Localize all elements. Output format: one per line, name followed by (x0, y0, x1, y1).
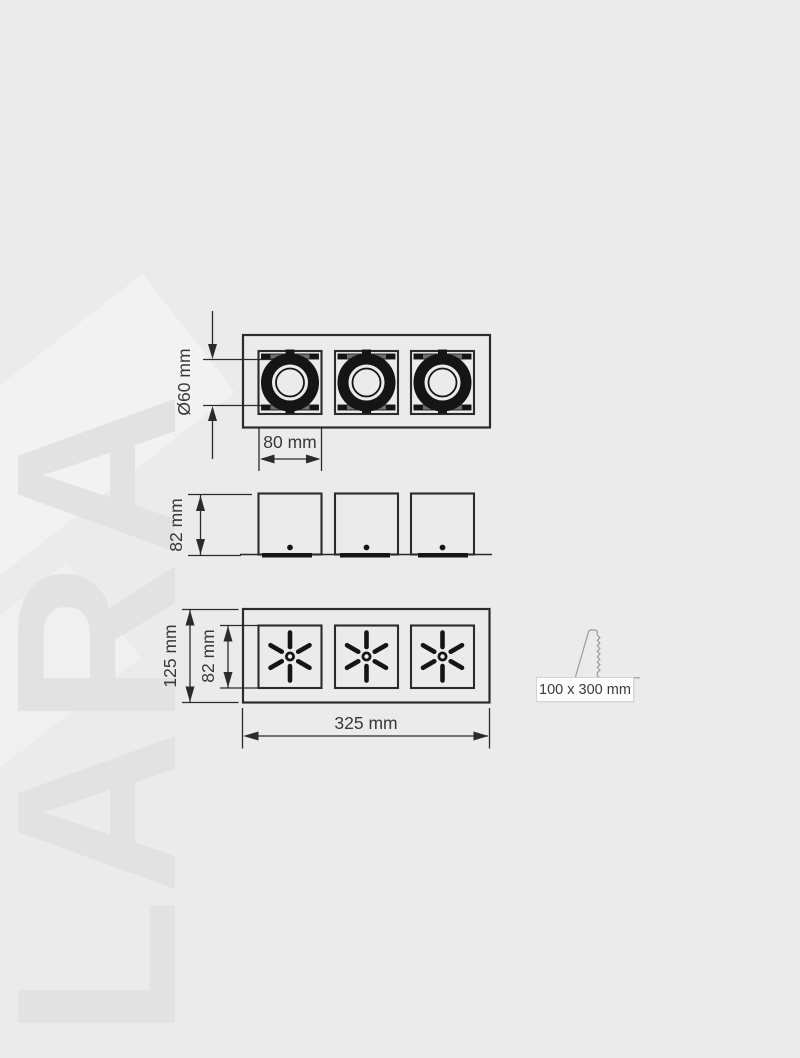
arrowhead-down-icon (186, 687, 195, 703)
arrowhead-down-icon (208, 344, 217, 359)
side-view-drawing (188, 494, 492, 558)
dim-label-recess-height: 82 mm (165, 475, 187, 575)
fixing-dot-icon (287, 545, 293, 551)
dim-label-diameter: Ø60 mm (173, 332, 195, 432)
arrowhead-down-icon (196, 539, 205, 555)
lamp-beam-icon (423, 633, 462, 681)
arrowhead-up-icon (186, 610, 195, 626)
technical-drawing (0, 0, 800, 1058)
saw-cutout-icon (575, 630, 640, 679)
arrowhead-up-icon (224, 626, 233, 642)
fixing-dot-icon (440, 545, 446, 551)
spotlight-module-side (259, 494, 322, 558)
arrowhead-right-icon (474, 732, 489, 741)
spotlight-ring-icon (343, 359, 390, 406)
spotlight-module-front (335, 626, 398, 689)
recess-height-dimension (188, 495, 252, 556)
cutout-size-badge: 100 x 300 mm (536, 677, 634, 702)
lamp-beam-icon (347, 633, 386, 681)
fixing-dot-icon (364, 545, 370, 551)
spotlight-module-side (335, 494, 398, 558)
dim-label-inner-height: 82 mm (197, 606, 219, 706)
spotlight-module-top (335, 350, 398, 415)
spotlight-module-top (411, 350, 474, 415)
spotlight-module-side (411, 494, 474, 558)
spotlight-ring-icon (267, 359, 314, 406)
dim-label-plate-height: 125 mm (159, 606, 181, 706)
spotlight-ring-icon (419, 359, 466, 406)
dim-label-module-width: 80 mm (240, 431, 340, 453)
inner-height-dimension (220, 626, 258, 689)
arrowhead-up-icon (208, 406, 217, 421)
dimension-drawing-page: LARA (0, 0, 800, 1058)
arrowhead-up-icon (196, 496, 205, 512)
spotlight-module-top (259, 350, 322, 415)
spotlight-module-front (411, 626, 474, 689)
arrowhead-left-icon (244, 732, 259, 741)
spotlight-module-front (259, 626, 322, 689)
dim-label-plate-width: 325 mm (306, 712, 426, 734)
lamp-beam-icon (271, 633, 310, 681)
arrowhead-right-icon (306, 455, 321, 464)
arrowhead-left-icon (260, 455, 275, 464)
arrowhead-down-icon (224, 672, 233, 688)
